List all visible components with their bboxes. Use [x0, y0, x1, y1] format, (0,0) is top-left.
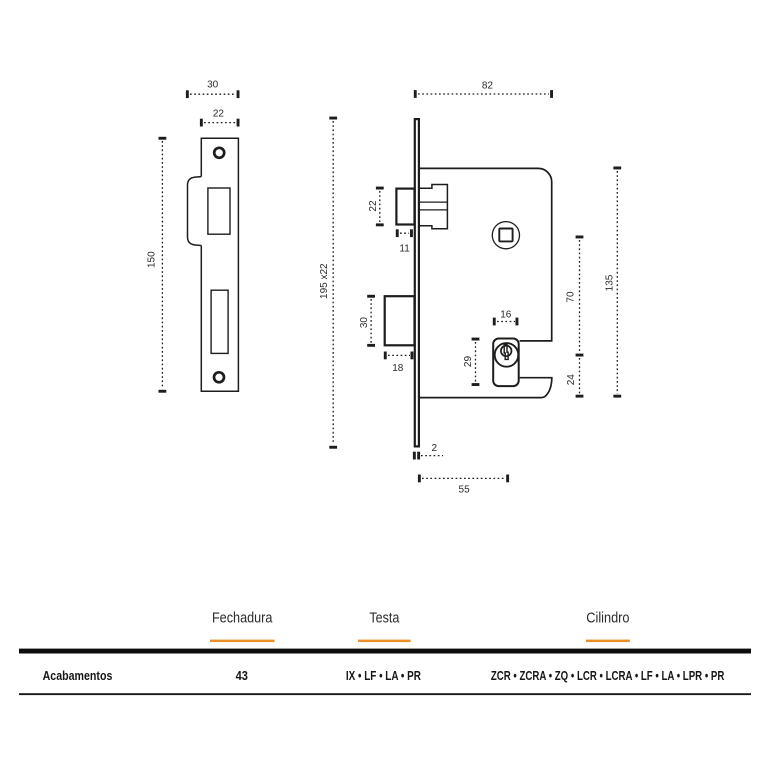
- svg-text:55: 55: [459, 485, 471, 496]
- svg-text:16: 16: [500, 309, 512, 320]
- svg-text:22: 22: [213, 108, 225, 119]
- svg-text:30: 30: [207, 80, 219, 91]
- svg-text:195 x22: 195 x22: [319, 263, 330, 299]
- svg-text:Acabamentos: Acabamentos: [43, 669, 113, 683]
- svg-text:70: 70: [566, 291, 577, 303]
- svg-text:22: 22: [368, 200, 379, 212]
- svg-text:IX • LF • LA • PR: IX • LF • LA • PR: [346, 669, 421, 683]
- svg-text:150: 150: [146, 251, 157, 268]
- svg-text:Testa: Testa: [369, 610, 400, 627]
- svg-text:ZCR • ZCRA • ZQ • LCR • LCRA •: ZCR • ZCRA • ZQ • LCR • LCRA • LF • LA •…: [491, 669, 725, 683]
- svg-text:43: 43: [236, 669, 248, 683]
- svg-text:18: 18: [392, 363, 404, 374]
- svg-text:11: 11: [399, 243, 410, 254]
- svg-text:30: 30: [359, 317, 370, 329]
- svg-text:Fechadura: Fechadura: [212, 610, 273, 627]
- svg-text:82: 82: [482, 81, 494, 92]
- svg-text:24: 24: [566, 374, 577, 386]
- svg-text:135: 135: [605, 274, 616, 291]
- svg-text:Cilindro: Cilindro: [586, 610, 629, 627]
- svg-text:2: 2: [432, 443, 438, 454]
- svg-text:29: 29: [463, 356, 474, 368]
